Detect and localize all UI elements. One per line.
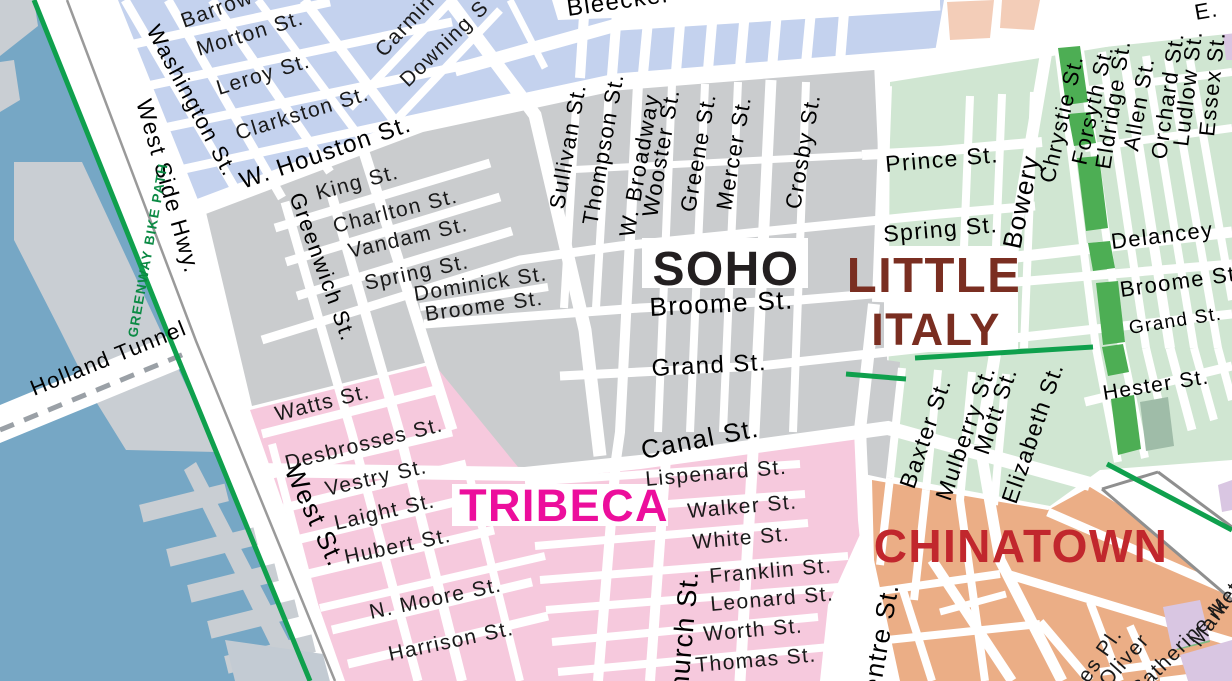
svg-text:E.: E.	[1193, 0, 1221, 25]
svg-text:ITALY: ITALY	[871, 304, 1001, 355]
svg-text:CHINATOWN: CHINATOWN	[874, 520, 1169, 572]
svg-text:TRIBECA: TRIBECA	[459, 480, 669, 531]
svg-text:LITTLE: LITTLE	[847, 249, 1021, 303]
